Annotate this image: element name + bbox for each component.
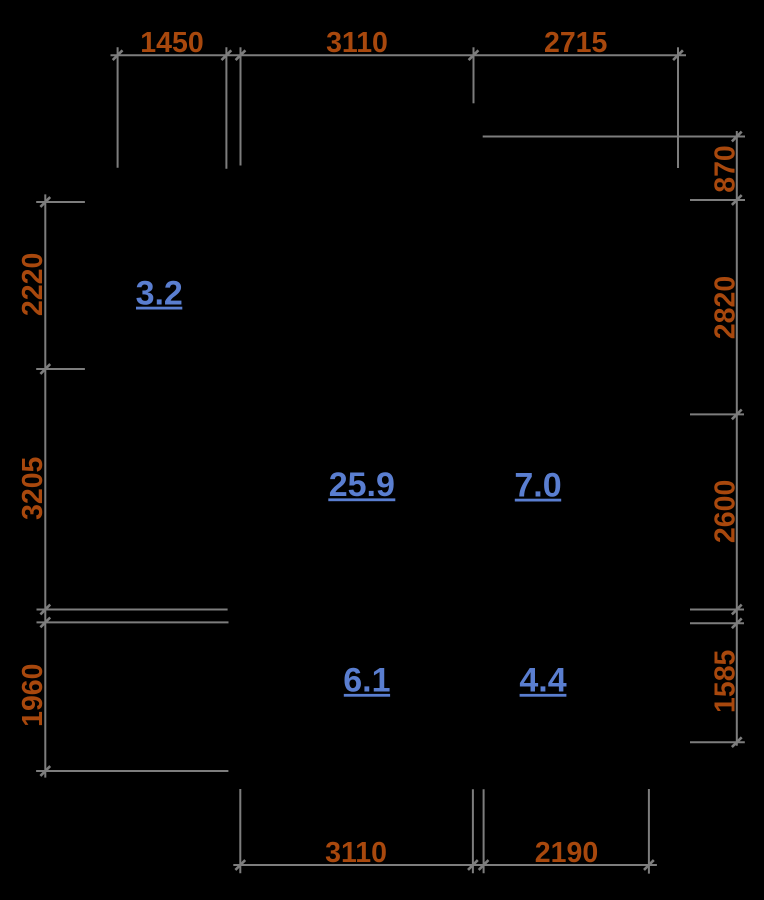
svg-text:3205: 3205	[17, 456, 49, 520]
svg-text:2190: 2190	[535, 837, 598, 869]
svg-text:1450: 1450	[140, 27, 203, 59]
svg-text:2820: 2820	[709, 276, 741, 339]
svg-text:3110: 3110	[326, 27, 388, 59]
svg-text:870: 870	[709, 145, 741, 193]
svg-text:3110: 3110	[325, 837, 387, 869]
svg-text:2715: 2715	[544, 27, 608, 59]
svg-text:1585: 1585	[709, 649, 741, 713]
svg-text:2220: 2220	[17, 253, 49, 316]
svg-text:1960: 1960	[17, 663, 49, 726]
svg-text:2600: 2600	[709, 480, 741, 543]
